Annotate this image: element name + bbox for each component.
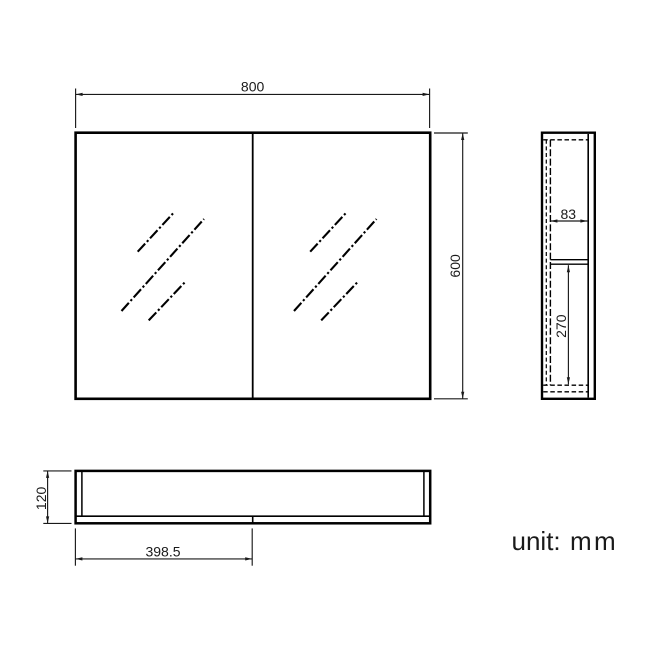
svg-text:600: 600	[447, 254, 463, 278]
svg-text:800: 800	[241, 78, 265, 94]
svg-text:120: 120	[33, 487, 49, 511]
svg-text:83: 83	[561, 206, 577, 222]
svg-text:unit:: unit:	[512, 526, 561, 556]
svg-text:398.5: 398.5	[145, 544, 180, 560]
svg-text:mm: mm	[570, 526, 618, 556]
svg-text:270: 270	[553, 314, 569, 338]
